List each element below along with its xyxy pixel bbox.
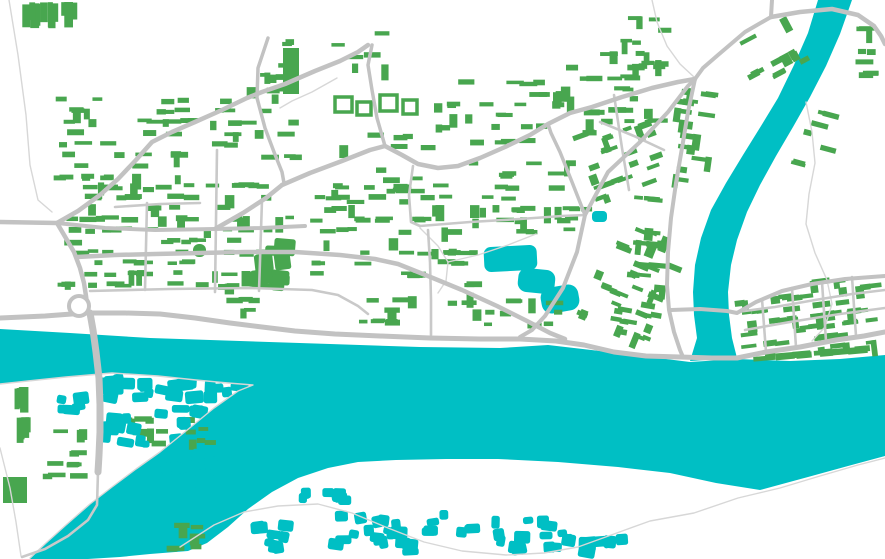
building	[439, 195, 452, 199]
major-road	[282, 79, 695, 185]
building	[190, 406, 207, 416]
building	[364, 185, 375, 190]
building	[147, 206, 156, 211]
building	[178, 98, 189, 103]
building	[436, 205, 445, 221]
building	[196, 282, 209, 287]
building	[552, 101, 560, 108]
building-cluster	[432, 184, 592, 242]
building	[620, 74, 636, 78]
building	[77, 430, 85, 443]
building	[29, 2, 35, 20]
building	[189, 440, 197, 450]
building	[360, 250, 369, 254]
building	[564, 534, 574, 544]
building	[204, 391, 218, 404]
building	[655, 60, 661, 76]
building	[88, 119, 96, 127]
building-cluster	[310, 183, 435, 278]
building	[441, 227, 448, 241]
building	[779, 16, 793, 33]
building	[335, 185, 349, 189]
building	[389, 238, 398, 250]
building	[70, 473, 88, 478]
building	[83, 185, 98, 189]
building	[108, 281, 124, 285]
building	[197, 438, 205, 443]
roundabout-layer	[69, 296, 89, 316]
building	[376, 167, 386, 172]
building	[811, 120, 829, 130]
building	[641, 61, 654, 65]
building	[375, 219, 390, 223]
building	[217, 205, 231, 210]
building	[436, 124, 443, 132]
building	[470, 140, 484, 146]
building	[347, 227, 356, 231]
building	[514, 103, 526, 107]
building	[59, 142, 67, 147]
building	[352, 64, 358, 73]
map-viewport[interactable]	[0, 0, 885, 559]
building	[167, 281, 183, 285]
building	[698, 112, 715, 119]
building	[333, 195, 350, 200]
building-cluster	[856, 26, 879, 78]
building-cluster	[331, 31, 389, 80]
building	[561, 87, 570, 102]
building	[277, 519, 294, 532]
building	[322, 488, 334, 497]
minor-road	[428, 230, 431, 335]
building	[383, 177, 400, 183]
building-cluster	[248, 238, 296, 292]
building	[394, 135, 408, 140]
building	[747, 320, 758, 333]
building	[184, 195, 199, 200]
building	[449, 249, 457, 255]
building	[221, 273, 237, 277]
building	[64, 2, 73, 27]
building	[615, 533, 628, 545]
building	[71, 450, 87, 455]
building-large	[3, 477, 27, 503]
building	[173, 270, 182, 275]
building	[255, 130, 264, 139]
building	[363, 524, 374, 536]
building	[506, 298, 521, 303]
building	[184, 183, 195, 187]
building	[479, 102, 493, 106]
building	[641, 301, 656, 309]
building	[867, 49, 876, 55]
building	[286, 39, 295, 45]
building	[158, 216, 167, 226]
building	[408, 296, 417, 308]
building	[104, 273, 116, 277]
building	[310, 219, 322, 223]
building	[48, 4, 55, 28]
building	[167, 194, 184, 199]
building	[67, 129, 84, 135]
building	[514, 531, 531, 544]
building	[182, 259, 195, 264]
building	[495, 140, 508, 144]
building	[143, 130, 156, 136]
building	[691, 156, 708, 162]
building	[775, 340, 790, 346]
building	[94, 260, 102, 265]
building	[137, 119, 151, 123]
building	[175, 108, 190, 113]
building	[484, 323, 492, 327]
building	[496, 113, 506, 117]
building	[863, 71, 879, 76]
building	[588, 162, 600, 171]
building	[422, 527, 436, 535]
building	[175, 175, 181, 184]
building-courtyard	[335, 97, 352, 112]
building	[128, 271, 138, 275]
building	[607, 77, 622, 81]
building	[62, 406, 75, 414]
minor-road	[145, 203, 147, 290]
building	[277, 132, 294, 137]
building	[264, 538, 281, 549]
building-cluster	[54, 97, 199, 193]
building	[299, 493, 307, 503]
building	[327, 538, 344, 551]
building	[47, 461, 63, 466]
minor-road	[852, 277, 856, 336]
building	[348, 205, 355, 218]
building	[75, 141, 93, 145]
building	[96, 216, 105, 222]
building	[495, 185, 508, 190]
building	[869, 282, 881, 288]
building	[179, 524, 188, 538]
building	[161, 99, 174, 104]
building-cluster	[299, 488, 352, 505]
building	[395, 537, 411, 549]
building	[633, 260, 650, 271]
building	[227, 238, 241, 243]
building	[40, 2, 48, 22]
building-cluster	[22, 2, 77, 28]
building	[520, 206, 535, 211]
building	[614, 86, 630, 90]
building	[633, 240, 648, 246]
building	[421, 195, 435, 200]
roundabout	[69, 296, 89, 316]
building	[392, 297, 409, 302]
building	[511, 207, 521, 211]
building	[347, 200, 365, 204]
building	[439, 510, 448, 520]
building	[168, 261, 177, 265]
building	[239, 121, 257, 125]
building	[482, 195, 494, 199]
building	[191, 448, 206, 463]
building	[456, 526, 468, 537]
building	[373, 535, 388, 546]
building	[134, 416, 152, 421]
building-courtyard	[380, 95, 397, 111]
building	[526, 161, 542, 165]
building	[114, 152, 124, 158]
building	[628, 16, 642, 20]
building-courtyard	[403, 100, 417, 114]
building	[643, 323, 653, 334]
building	[205, 486, 220, 500]
building	[257, 184, 269, 189]
building	[386, 319, 397, 324]
building	[644, 109, 653, 119]
building	[632, 41, 641, 45]
building	[402, 548, 419, 556]
building	[870, 340, 878, 357]
building	[185, 390, 204, 404]
building	[169, 205, 180, 210]
building	[19, 418, 24, 440]
building	[472, 219, 479, 229]
building	[620, 39, 632, 43]
building-cluster	[577, 533, 628, 559]
building	[84, 109, 90, 120]
building	[339, 145, 348, 158]
building	[433, 184, 449, 188]
building	[381, 64, 388, 80]
building	[539, 92, 550, 97]
building	[189, 238, 198, 243]
building	[617, 174, 633, 183]
building	[210, 121, 216, 130]
building-cluster	[43, 429, 88, 479]
building	[491, 516, 500, 529]
building	[628, 159, 639, 168]
building	[521, 124, 533, 129]
building	[251, 520, 266, 534]
building-cluster	[469, 138, 576, 179]
building	[412, 176, 422, 180]
building	[469, 250, 478, 255]
building	[588, 174, 599, 187]
building	[636, 51, 645, 56]
building	[88, 204, 96, 215]
building	[449, 114, 457, 128]
building	[226, 298, 242, 304]
building	[629, 332, 641, 349]
building	[569, 207, 580, 211]
building	[224, 132, 241, 136]
building	[387, 308, 396, 319]
building	[820, 349, 834, 357]
building	[116, 436, 134, 448]
building	[566, 160, 576, 166]
building	[622, 41, 628, 54]
building-cluster	[327, 510, 448, 556]
building	[589, 110, 605, 115]
building	[399, 230, 412, 235]
building	[335, 510, 348, 521]
building	[56, 97, 67, 102]
building	[62, 152, 75, 158]
building-cluster	[663, 86, 721, 192]
building	[480, 208, 486, 218]
building	[232, 183, 245, 188]
building	[154, 409, 168, 419]
building	[854, 345, 870, 352]
building	[240, 309, 246, 319]
building	[176, 215, 188, 221]
building	[644, 196, 659, 201]
building	[85, 229, 95, 234]
building	[649, 151, 663, 161]
building	[593, 269, 604, 280]
building	[506, 81, 523, 85]
building	[212, 141, 228, 146]
building	[367, 298, 379, 303]
building	[126, 421, 142, 436]
building	[465, 114, 472, 123]
building	[121, 217, 138, 223]
building	[649, 17, 660, 21]
building	[61, 282, 75, 287]
building	[156, 185, 172, 190]
building	[426, 517, 439, 526]
building	[275, 217, 283, 233]
building	[130, 183, 138, 197]
building	[160, 462, 173, 474]
building	[198, 427, 208, 431]
building	[174, 153, 180, 167]
building-courtyard	[357, 102, 371, 115]
building	[92, 97, 102, 101]
building-cluster	[226, 297, 259, 319]
building	[399, 251, 414, 255]
building	[610, 51, 618, 64]
building	[64, 120, 75, 124]
building	[448, 301, 457, 306]
building-cluster	[56, 391, 90, 415]
building	[156, 429, 168, 434]
building	[84, 272, 97, 277]
building	[447, 102, 460, 107]
building	[650, 312, 662, 319]
building	[572, 131, 588, 141]
building	[69, 107, 83, 111]
building	[431, 249, 438, 259]
building	[137, 378, 152, 390]
lake	[592, 211, 607, 222]
building	[373, 319, 386, 323]
building	[81, 174, 94, 179]
building	[331, 206, 346, 211]
building	[104, 175, 114, 180]
building	[56, 394, 67, 404]
building	[69, 227, 82, 233]
building	[412, 217, 424, 221]
building	[632, 284, 644, 292]
building	[336, 227, 348, 232]
building	[563, 227, 575, 231]
building	[191, 525, 203, 529]
building	[554, 310, 562, 315]
building	[734, 300, 745, 307]
building	[369, 194, 387, 200]
building	[548, 172, 564, 176]
building	[264, 73, 270, 84]
building	[88, 249, 98, 253]
building	[172, 405, 190, 413]
building	[67, 463, 79, 467]
building	[539, 532, 552, 540]
building	[395, 188, 409, 193]
building	[288, 120, 299, 126]
building	[741, 344, 757, 349]
building	[100, 141, 116, 145]
building	[331, 43, 344, 47]
building	[586, 76, 602, 81]
city-map	[0, 0, 885, 559]
building	[387, 189, 395, 194]
building	[79, 217, 96, 222]
building	[205, 457, 218, 470]
building	[285, 216, 294, 220]
major-road	[695, 0, 772, 79]
building	[132, 392, 149, 402]
building-large	[283, 48, 299, 94]
building	[54, 175, 66, 180]
building	[485, 310, 494, 315]
building	[53, 429, 68, 433]
building	[544, 207, 551, 223]
building	[467, 281, 483, 287]
building	[315, 195, 325, 199]
building	[865, 317, 877, 322]
building	[272, 94, 279, 103]
building	[491, 124, 499, 130]
building	[646, 162, 659, 170]
building	[323, 240, 329, 251]
building	[502, 171, 516, 175]
building	[501, 197, 516, 201]
building	[678, 177, 688, 183]
building	[641, 178, 657, 187]
building	[775, 352, 794, 360]
building	[20, 387, 28, 413]
building	[310, 271, 324, 275]
building	[135, 434, 146, 447]
building	[549, 185, 565, 190]
building	[820, 145, 837, 154]
building	[123, 259, 137, 263]
lake-layer	[483, 211, 607, 315]
building	[88, 283, 97, 288]
building	[157, 109, 166, 114]
building	[116, 195, 126, 200]
building	[220, 99, 232, 104]
building	[312, 261, 321, 266]
building	[624, 119, 634, 123]
building	[463, 301, 471, 305]
building	[354, 262, 371, 266]
building	[354, 217, 364, 222]
building	[856, 59, 874, 64]
building	[836, 299, 850, 306]
building	[393, 184, 407, 188]
minor-road	[215, 150, 217, 292]
